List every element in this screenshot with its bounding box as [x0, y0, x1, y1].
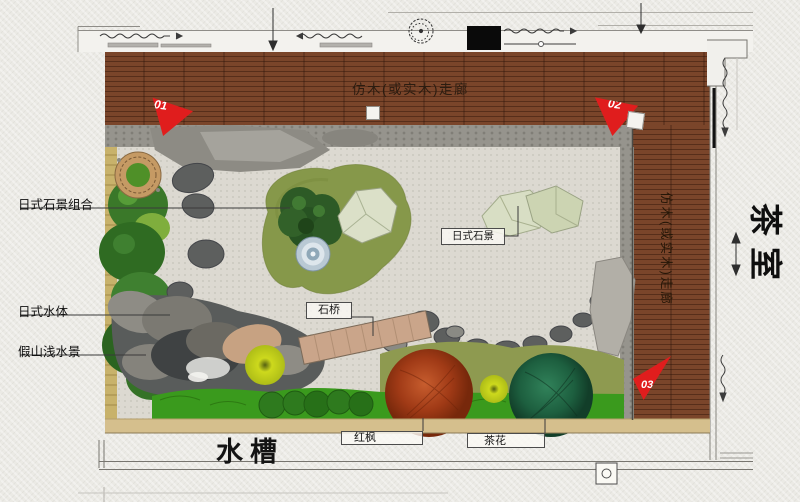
yellow-bush [245, 345, 285, 385]
stone-scene-label: 日式石景 [441, 228, 505, 245]
yellow-bush-small [480, 375, 508, 403]
gray-wall-bars [108, 43, 747, 47]
column-marker-square-small [366, 106, 380, 120]
water-body-label: 日式水体 [18, 301, 68, 320]
rockery-label: 假山浅水景 [18, 341, 81, 360]
camellia-label: 茶花 [467, 433, 545, 448]
column-marker-square [626, 111, 645, 130]
small-tree-row [259, 390, 373, 418]
bottom-band-lines [78, 440, 753, 502]
stone-basin [296, 237, 330, 271]
spiral-stone-ring [115, 152, 161, 198]
tea-room-span-arrow [732, 233, 740, 275]
section-squiggles [720, 58, 728, 401]
plan-drawing [0, 0, 800, 502]
black-column-block [467, 26, 501, 50]
top-rock-mass [150, 125, 378, 172]
stone-combo-label: 日式石景组合 [18, 194, 93, 213]
water-trough-label: 水槽 [216, 430, 284, 469]
tea-room-label: 茶室 [744, 203, 792, 313]
large-boundary-rock [590, 257, 635, 356]
rockery-water-feature [102, 284, 324, 398]
top-corridor-label: 仿木(或实木)走廊 [352, 78, 469, 98]
red-maple-label: 红枫 [341, 431, 423, 445]
right-corridor-label: 仿木(或实木)走廊 [658, 192, 677, 342]
column-symbol [596, 463, 617, 484]
stone-bridge-label: 石桥 [306, 302, 352, 319]
